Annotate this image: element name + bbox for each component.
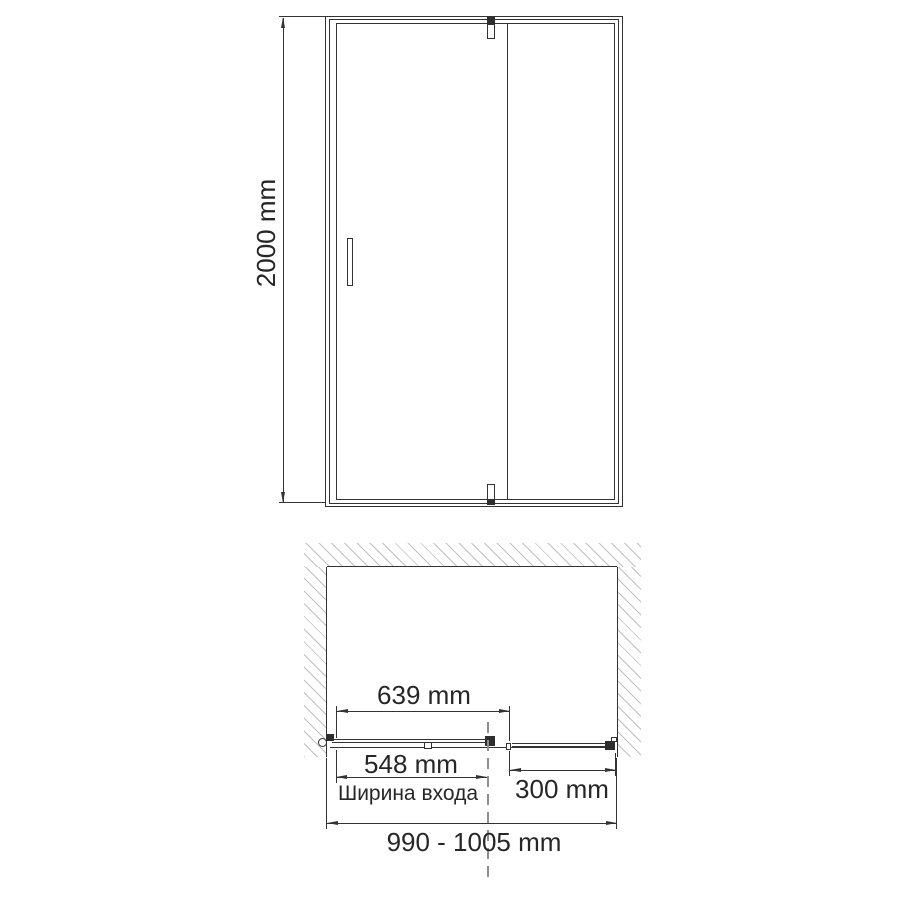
wall-bracket-left xyxy=(326,734,334,741)
dim-639-label: 639 mm xyxy=(354,682,494,708)
door-fixed-divider-line xyxy=(507,23,508,500)
dim-total-arrow-right-icon xyxy=(606,821,617,825)
dim-548-arrow-right-icon xyxy=(476,775,487,779)
top-hinge xyxy=(487,24,495,39)
height-dim-extension-bottom xyxy=(279,502,326,503)
wall-inner-edge-left xyxy=(326,567,327,757)
bottom-hinge-cap xyxy=(487,500,495,505)
dim-639-arrow-right-icon xyxy=(499,709,510,713)
entrance-width-caption: Ширина входа xyxy=(328,783,488,804)
dim-300-arrow-right-icon xyxy=(605,768,616,772)
dim-total-arrow-left-icon xyxy=(327,821,338,825)
door-handle xyxy=(347,238,353,286)
front-glass-panel-outline xyxy=(336,23,615,500)
dim-total-label: 990 - 1005 mm xyxy=(354,828,594,855)
plan-door-guide-block xyxy=(424,742,432,749)
height-dim-arrow-up-icon xyxy=(281,17,285,28)
dim-300-arrow-left-icon xyxy=(510,768,521,772)
dim-548-label: 548 mm xyxy=(341,752,481,775)
dim-total-line xyxy=(327,823,617,824)
height-dim-extension-top xyxy=(279,16,326,17)
height-dim-arrow-down-icon xyxy=(281,492,285,503)
dim-639-line xyxy=(337,711,510,712)
wall-inner-edge-right xyxy=(617,567,618,757)
plan-door-glass xyxy=(332,739,492,743)
wall-bracket-right xyxy=(605,741,615,750)
height-dim-line xyxy=(283,18,284,503)
plan-fixed-panel-clamp xyxy=(506,743,511,750)
dim-total-extension-right xyxy=(616,758,617,829)
dim-300-label: 300 mm xyxy=(492,776,632,802)
wall-inner-edge-top xyxy=(327,566,617,567)
dim-548-arrow-left-icon xyxy=(336,775,347,779)
wall-bracket-right-knob xyxy=(611,737,617,742)
shower-door-technical-drawing: 2000 mm 639 mm 548 mm Ширина входа 300 m… xyxy=(0,0,900,900)
plan-fixed-glass xyxy=(512,743,610,747)
top-hinge-cap xyxy=(487,17,495,24)
dim-total-extension-left xyxy=(326,758,327,829)
plan-track-line xyxy=(330,747,615,748)
wall-hatch-left xyxy=(304,567,327,757)
wall-hatch-top xyxy=(304,543,641,567)
bottom-hinge xyxy=(487,484,495,500)
dim-300-extension-left xyxy=(509,751,510,776)
wall-hatch-right xyxy=(617,567,641,757)
dim-300-line xyxy=(510,770,616,771)
height-dim-label: 2000 mm xyxy=(251,173,281,293)
dim-639-arrow-left-icon xyxy=(337,709,348,713)
